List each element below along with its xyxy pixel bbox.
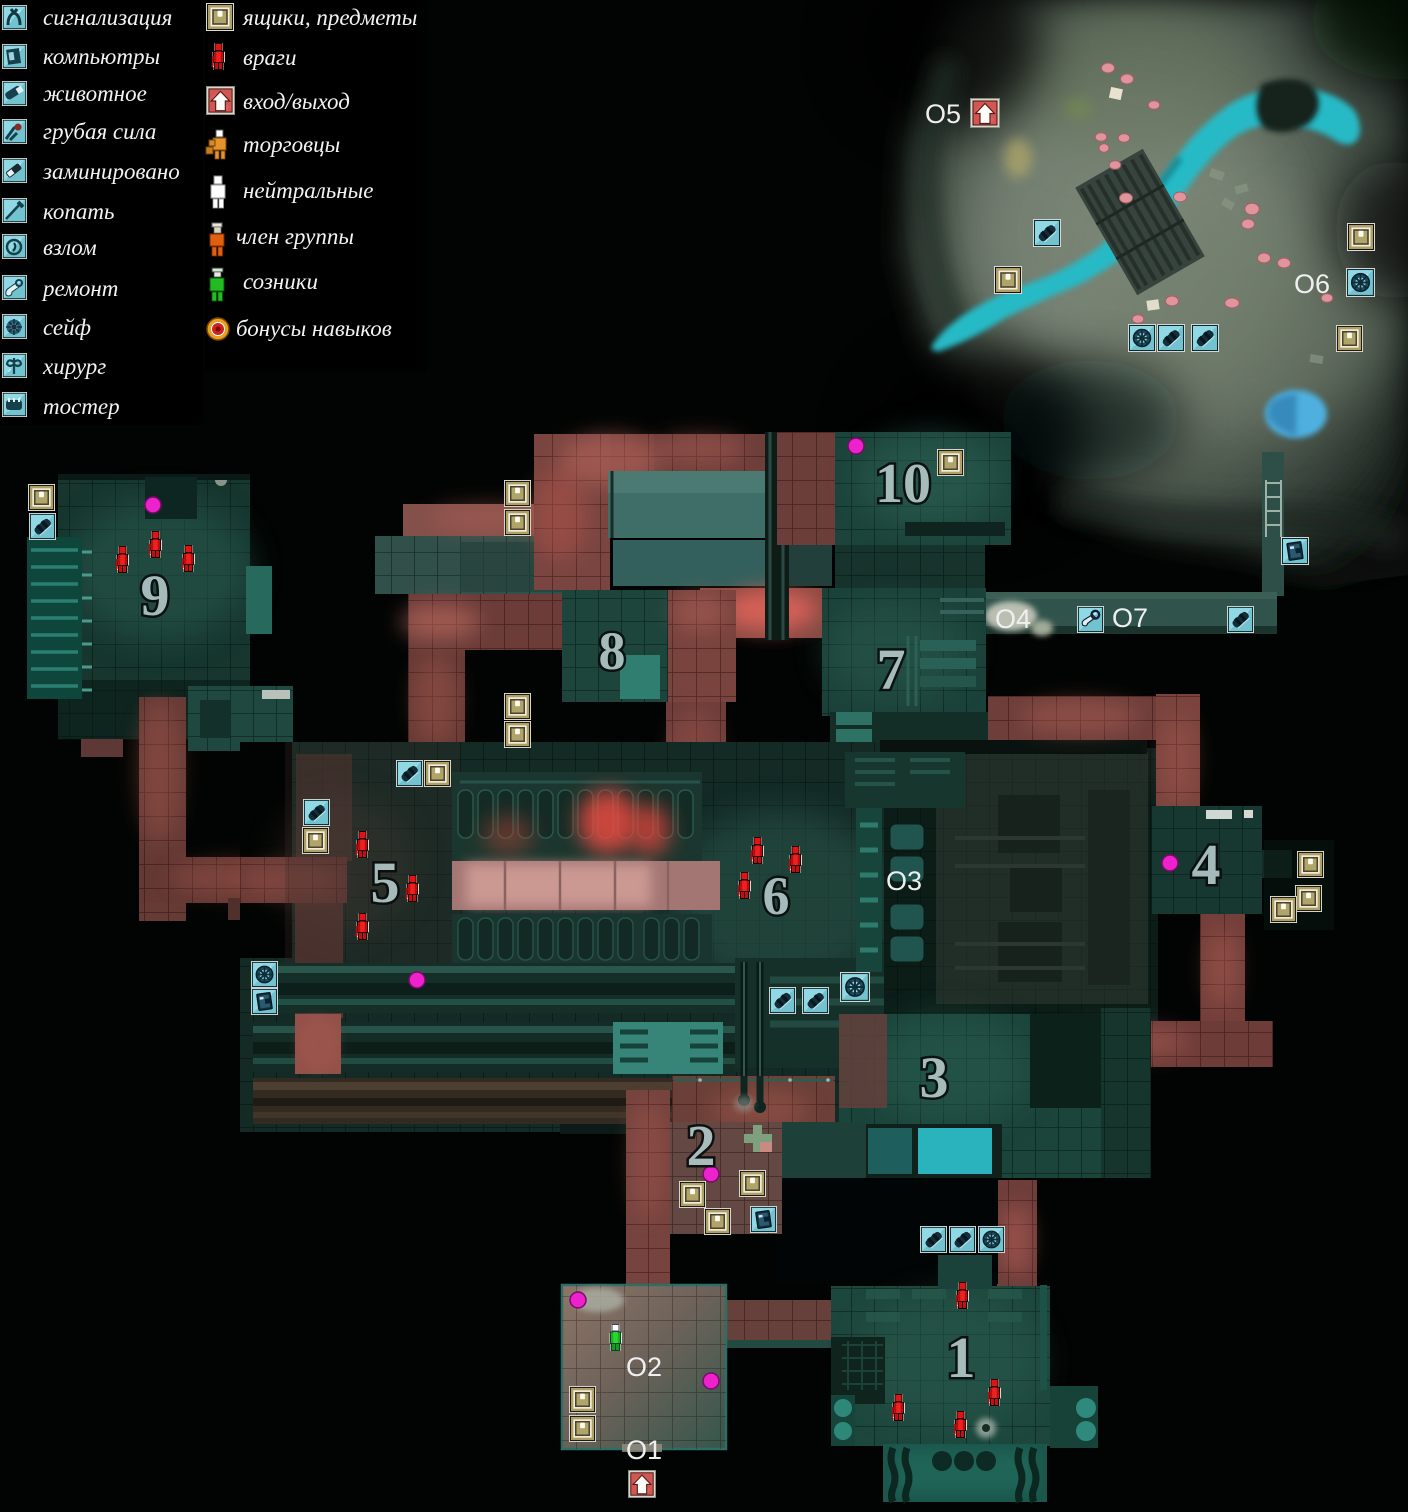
svg-text:O3: O3 [886, 866, 922, 896]
svg-text:5: 5 [371, 850, 400, 915]
svg-text:3: 3 [920, 1045, 949, 1110]
svg-text:копать: копать [43, 199, 114, 224]
svg-text:O2: O2 [626, 1352, 662, 1382]
svg-text:1: 1 [947, 1325, 976, 1390]
svg-text:заминировано: заминировано [42, 159, 180, 184]
svg-text:сейф: сейф [43, 315, 91, 340]
svg-text:2: 2 [687, 1113, 716, 1178]
svg-text:бонусы навыков: бонусы навыков [236, 316, 392, 341]
svg-text:O1: O1 [626, 1435, 662, 1465]
svg-text:вход/выход: вход/выход [243, 89, 350, 114]
svg-text:10: 10 [875, 453, 931, 515]
svg-text:взлом: взлом [43, 235, 97, 260]
svg-text:9: 9 [141, 563, 170, 628]
svg-text:созники: созники [243, 269, 318, 294]
svg-text:член группы: член группы [236, 224, 354, 249]
svg-text:нейтральные: нейтральные [243, 178, 373, 203]
svg-text:O4: O4 [995, 604, 1031, 634]
svg-text:4: 4 [1192, 832, 1221, 897]
svg-text:тостер: тостер [43, 394, 120, 419]
svg-text:ремонт: ремонт [41, 276, 118, 301]
svg-text:O6: O6 [1294, 269, 1330, 299]
svg-text:ящики, предметы: ящики, предметы [242, 5, 417, 30]
svg-text:сигнализация: сигнализация [43, 5, 172, 30]
svg-text:грубая сила: грубая сила [43, 119, 156, 144]
svg-text:компьютры: компьютры [43, 44, 160, 69]
svg-text:животное: животное [43, 81, 147, 106]
svg-text:8: 8 [599, 621, 626, 681]
svg-text:O5: O5 [925, 99, 961, 129]
svg-text:6: 6 [763, 866, 790, 926]
svg-text:торговцы: торговцы [243, 132, 340, 157]
svg-text:7: 7 [877, 637, 906, 702]
svg-text:враги: враги [243, 45, 296, 70]
svg-text:O7: O7 [1112, 603, 1148, 633]
svg-text:хирург: хирург [42, 354, 106, 379]
